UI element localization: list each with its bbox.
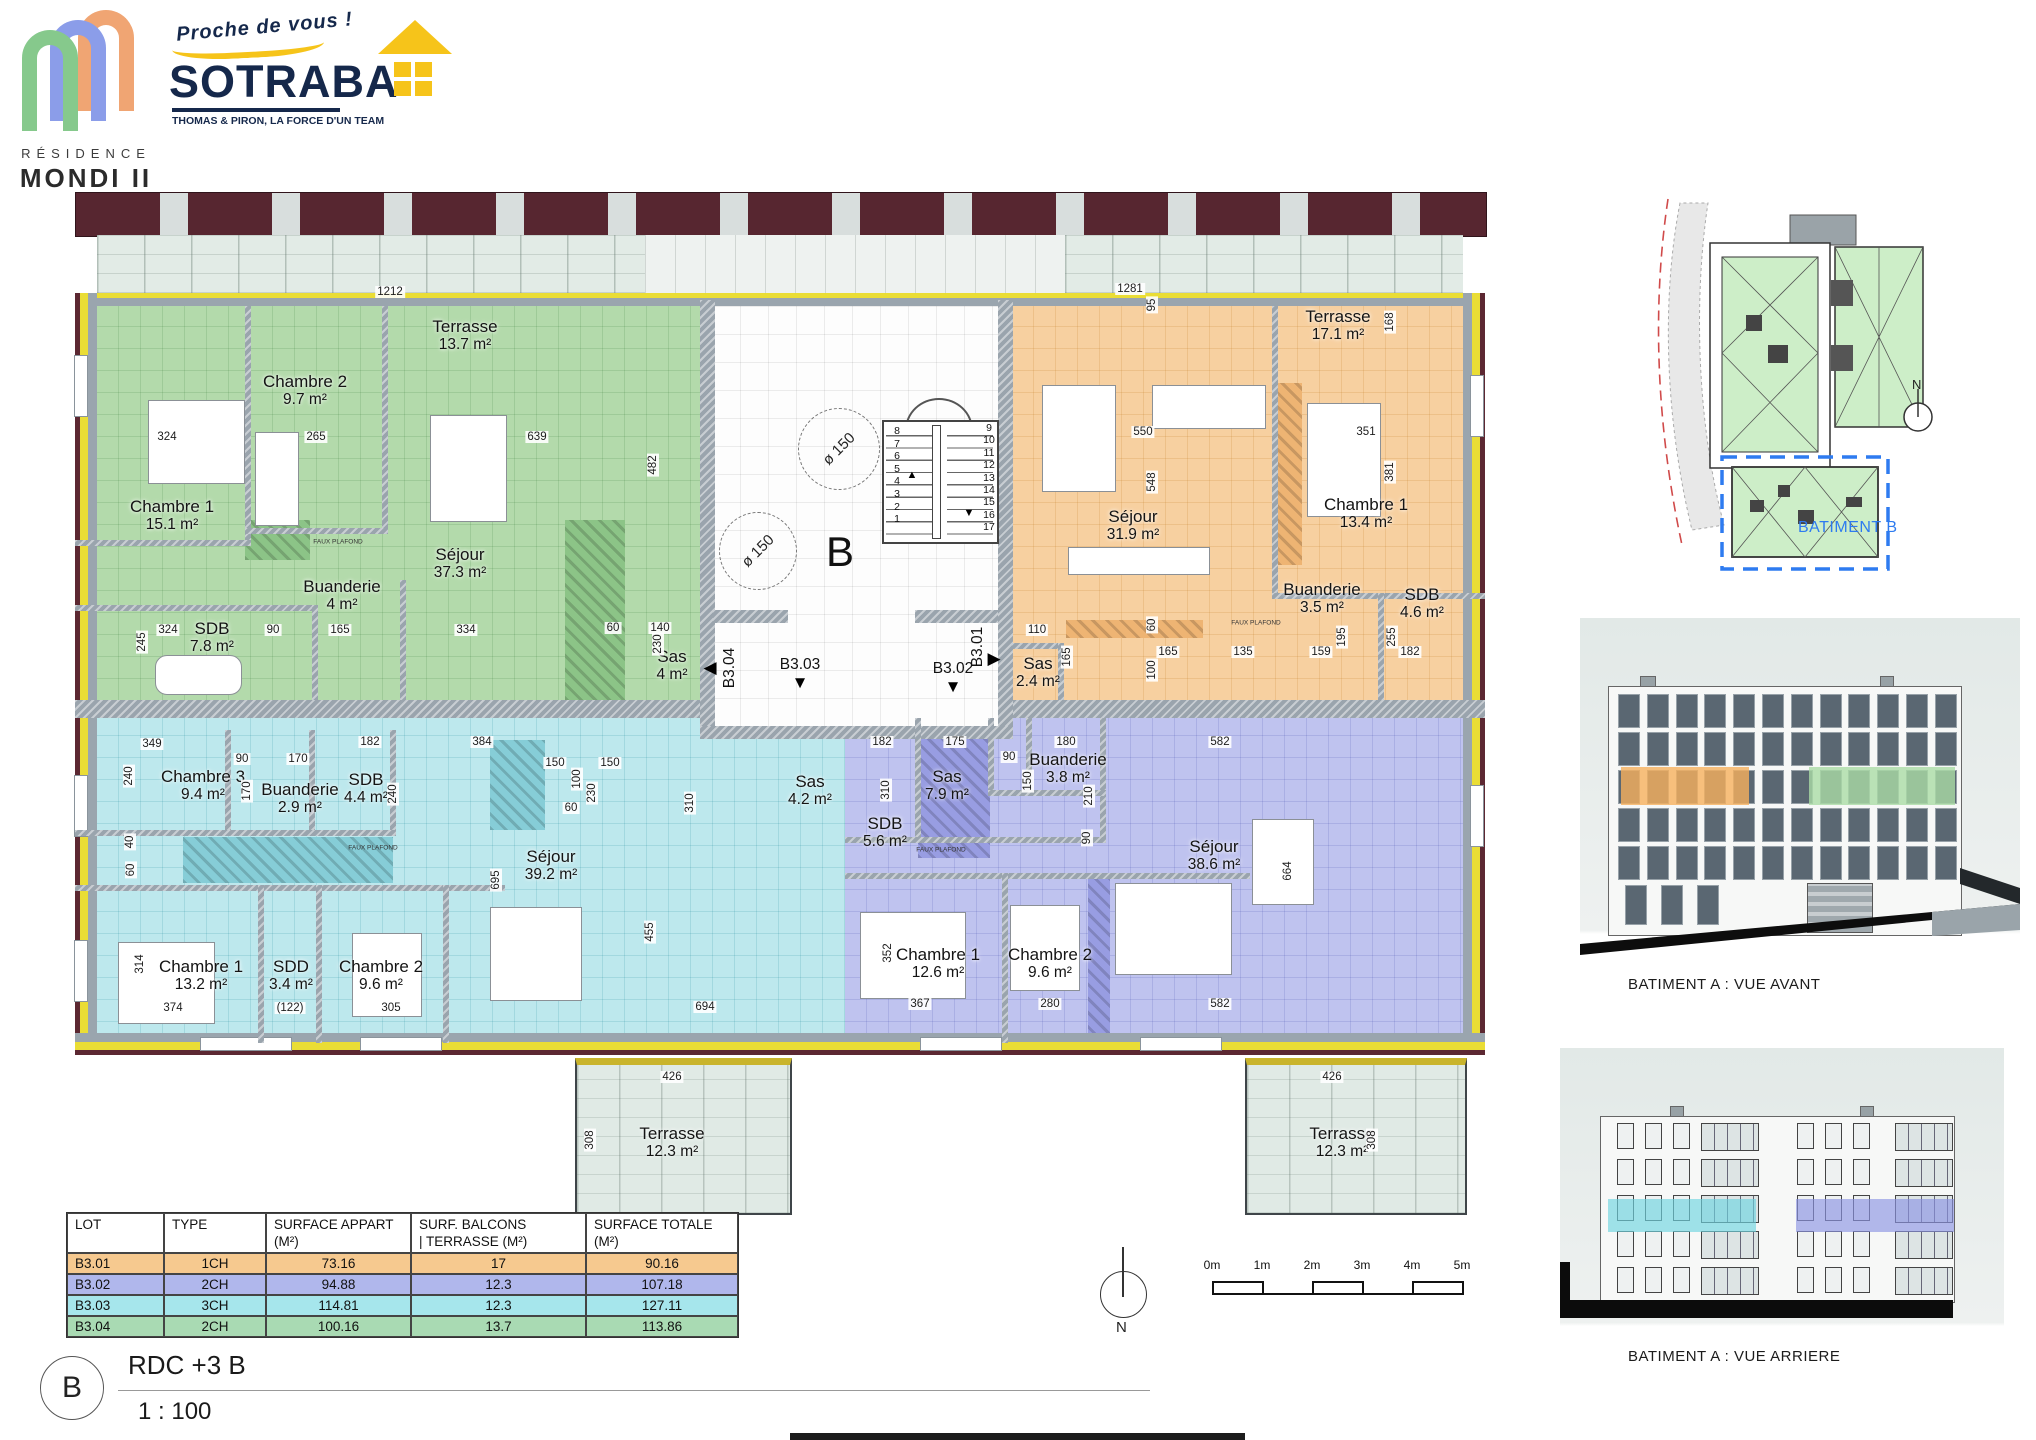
facade-window <box>1673 1231 1690 1257</box>
room-name: Séjour <box>434 545 487 564</box>
north-compass: N <box>1080 1245 1170 1345</box>
dimension-label: 60 <box>1146 617 1158 634</box>
table <box>490 907 582 1001</box>
dimension-label: 170 <box>286 753 309 765</box>
room-label: Chambre 112.6 m² <box>896 945 980 981</box>
table <box>430 415 507 522</box>
facade-window <box>1617 1159 1634 1185</box>
room-name: Chambre 2 <box>263 372 347 391</box>
room-label: Séjour31.9 m² <box>1107 507 1160 543</box>
stair-step-number: 17 <box>983 521 995 533</box>
dimension-label: 159 <box>1309 646 1332 658</box>
room-area: 12.3 m² <box>639 1143 704 1160</box>
stairs-down-arrow-icon: ▼ <box>964 507 975 519</box>
facade-window <box>1791 808 1813 842</box>
wall <box>75 540 251 546</box>
room-area: 9.6 m² <box>1008 964 1092 981</box>
unit-arrow-icon: ▼ <box>945 677 962 697</box>
entry-hatch <box>490 740 545 830</box>
table-cell: B3.03 <box>67 1295 164 1316</box>
wall <box>75 293 1485 306</box>
highlight-floor-orange <box>1621 767 1749 805</box>
facade-window <box>1617 1123 1634 1149</box>
stair-step-number: 8 <box>894 425 900 437</box>
room-area: 9.7 m² <box>263 391 347 408</box>
elevation-rear-label: BATIMENT A : VUE ARRIERE <box>1628 1348 1840 1365</box>
facade-window <box>1762 808 1784 842</box>
facade-window <box>1618 694 1640 728</box>
room-label: Chambre 39.4 m² <box>161 767 245 803</box>
roof-grid <box>645 235 1065 293</box>
highlight-floor-purple <box>1796 1199 1954 1232</box>
table-cell: 100.16 <box>266 1316 411 1337</box>
dimension-label: 168 <box>1384 310 1396 333</box>
entry-hatch <box>1278 383 1302 565</box>
window <box>1470 375 1484 437</box>
facade-window <box>1853 1267 1870 1293</box>
facade-window <box>1848 694 1870 728</box>
facade-window <box>1673 1123 1690 1149</box>
dimension-label: 374 <box>161 1002 184 1014</box>
dimension-label: 230 <box>586 781 598 804</box>
table-cell: 107.18 <box>586 1274 738 1295</box>
dimension-label: 90 <box>1001 751 1018 763</box>
room-area: 12.3 m² <box>1309 1143 1374 1160</box>
wall <box>443 885 449 1043</box>
wall <box>382 306 388 532</box>
elevation-front-label: BATIMENT A : VUE AVANT <box>1628 976 1820 993</box>
dimension-label: 351 <box>1354 426 1377 438</box>
entry-hatch <box>1066 620 1203 638</box>
bathtub <box>155 655 242 695</box>
dimension-label: FAUX PLAFOND <box>1229 620 1282 627</box>
facade-window <box>1853 1159 1870 1185</box>
sofa <box>1152 385 1266 429</box>
room-area: 3.5 m² <box>1283 599 1361 616</box>
facade-window <box>1733 808 1755 842</box>
room-label: Terrasse17.1 m² <box>1305 307 1370 343</box>
room-area: 4.6 m² <box>1400 604 1444 621</box>
table-cell: 2CH <box>164 1274 266 1295</box>
dimension-label: 349 <box>140 738 163 750</box>
room-area: 4 m² <box>303 596 381 613</box>
wall <box>915 718 921 840</box>
facade-window <box>1704 846 1726 880</box>
dimension-label: 110 <box>1026 624 1048 636</box>
room-area: 9.4 m² <box>161 786 245 803</box>
facade-window <box>1906 808 1928 842</box>
room-area: 17.1 m² <box>1305 326 1370 343</box>
room-area: 15.1 m² <box>130 516 214 533</box>
room-label: Séjour37.3 m² <box>434 545 487 581</box>
room-label: SDB5.6 m² <box>863 814 907 850</box>
upper-facade-band <box>75 192 1487 237</box>
room-name: SDB <box>863 814 907 833</box>
room-name: Chambre 1 <box>130 497 214 516</box>
unit-label: B3.04 <box>721 648 739 689</box>
company-subtitle: THOMAS & PIRON, LA FORCE D'UN TEAM <box>172 115 384 127</box>
wall <box>258 885 264 1043</box>
dimension-label: 175 <box>943 736 966 748</box>
dimension-label: 305 <box>379 1002 402 1014</box>
stair-step-number: 14 <box>983 484 995 496</box>
table-header-cell: SURF. BALCONS | TERRASSE (M²) <box>411 1213 586 1253</box>
dimension-label: 265 <box>304 431 327 443</box>
table-cell: 114.81 <box>266 1295 411 1316</box>
logo-arc-green-icon <box>22 30 78 131</box>
dimension-label: 381 <box>1384 460 1396 483</box>
facade-window <box>1848 808 1870 842</box>
wall <box>845 873 1250 879</box>
level-title: RDC +3 B <box>128 1350 246 1381</box>
wall <box>245 306 251 540</box>
facade-window <box>1791 732 1813 766</box>
dimension-label: 60 <box>125 862 137 879</box>
room-label: Terrasse13.7 m² <box>432 317 497 353</box>
room-label: Chambre 113.4 m² <box>1324 495 1408 531</box>
kitchen-counter <box>1068 547 1210 575</box>
facade-window <box>1647 694 1669 728</box>
batiment-b-label: BATIMENT B <box>1798 519 1898 537</box>
unit-arrow-icon: ▼ <box>792 673 809 693</box>
stairs-up-arrow-icon: ▲ <box>907 469 918 481</box>
facade-window <box>1877 808 1899 842</box>
dimension-label: 165 <box>328 624 351 636</box>
room-name: SDB <box>1400 585 1444 604</box>
facade-window <box>1935 732 1957 766</box>
table-cell: 127.11 <box>586 1295 738 1316</box>
facade-window <box>1647 846 1669 880</box>
wall <box>400 580 406 700</box>
house-icon <box>378 20 452 104</box>
facade-window <box>1701 1159 1759 1187</box>
facade-window <box>1825 1267 1842 1293</box>
wall <box>312 605 318 700</box>
room-area: 2.4 m² <box>1016 673 1060 690</box>
table-cell: B3.01 <box>67 1253 164 1274</box>
stair-step-number: 3 <box>894 488 900 500</box>
stair-step-number: 13 <box>983 472 995 484</box>
table-cell: 13.7 <box>411 1316 586 1337</box>
scalebar-label: 5m <box>1454 1258 1471 1272</box>
facade-window <box>1676 732 1698 766</box>
stair-step-number: 6 <box>894 450 900 462</box>
room-area: 31.9 m² <box>1107 526 1160 543</box>
room-name: Sas <box>925 767 969 786</box>
entry-hatch <box>245 520 310 560</box>
dimension-label: 165 <box>1156 646 1179 658</box>
table <box>1042 385 1116 492</box>
dimension-label: 180 <box>1054 736 1077 748</box>
table-header-cell: SURFACE APPART (M²) <box>266 1213 411 1253</box>
highlight-floor-cyan <box>1608 1199 1756 1232</box>
bed <box>255 432 299 526</box>
table-cell: 2CH <box>164 1316 266 1337</box>
facade-window <box>1877 846 1899 880</box>
facade-window <box>1762 732 1784 766</box>
stair-step-number: 5 <box>894 463 900 475</box>
facade-window <box>1676 808 1698 842</box>
facade-window <box>1645 1159 1662 1185</box>
diameter-label: ø 150 <box>738 531 777 570</box>
room-name: Buanderie <box>261 780 339 799</box>
scalebar-label: 1m <box>1254 1258 1271 1272</box>
dimension-label: 664 <box>1282 859 1294 882</box>
wall <box>1378 593 1384 700</box>
facade-window <box>1676 694 1698 728</box>
residence-logo <box>20 8 170 143</box>
dimension-label: 426 <box>660 1071 683 1083</box>
dimension-label: 60 <box>605 622 622 634</box>
room-label: Chambre 113.2 m² <box>159 957 243 993</box>
facade-window <box>1625 885 1647 925</box>
wall <box>390 730 396 830</box>
room-area: 4.4 m² <box>344 789 388 806</box>
company-name: SOTRABA <box>169 56 399 108</box>
drawing-sheet: RÉSIDENCE MONDI II Proche de vous ! SOTR… <box>0 0 2036 1440</box>
unit-label: B3.02 <box>933 660 974 678</box>
room-area: 13.7 m² <box>432 336 497 353</box>
facade-window <box>1825 1231 1842 1257</box>
facade-window <box>1618 732 1640 766</box>
stair-step-number: 1 <box>894 513 900 525</box>
table-cell: B3.02 <box>67 1274 164 1295</box>
dimension-label: 639 <box>525 431 548 443</box>
room-area: 2.9 m² <box>261 799 339 816</box>
table-cell: 113.86 <box>586 1316 738 1337</box>
dimension-label: 352 <box>882 941 894 964</box>
room-name: Buanderie <box>303 577 381 596</box>
room-name: SDB <box>190 619 234 638</box>
room-area: 12.6 m² <box>896 964 980 981</box>
room-area: 5.6 m² <box>863 833 907 850</box>
wall <box>75 605 315 611</box>
dimension-label: 90 <box>234 753 251 765</box>
facade-window <box>1825 1123 1842 1149</box>
stair-step-number: 2 <box>894 501 900 513</box>
residence-word: RÉSIDENCE <box>6 146 166 161</box>
facade-window <box>1701 1267 1759 1295</box>
stair-stringer <box>932 425 941 539</box>
room-name: Chambre 1 <box>896 945 980 964</box>
room-label: Chambre 115.1 m² <box>130 497 214 533</box>
table-cell: 1CH <box>164 1253 266 1274</box>
bottom-strip <box>790 1433 1245 1440</box>
title-line <box>118 1390 1150 1391</box>
facade-window <box>1848 846 1870 880</box>
dimension-label: 90 <box>265 624 282 636</box>
room-label: Chambre 29.6 m² <box>339 957 423 993</box>
room-label: Sas2.4 m² <box>1016 654 1060 690</box>
dimension-label: 384 <box>470 736 493 748</box>
site-north-label: N <box>1912 377 1921 392</box>
dimension-label: 455 <box>644 920 656 943</box>
facade-window <box>1697 885 1719 925</box>
dimension-label: FAUX PLAFOND <box>346 845 399 852</box>
table-header-cell: SURFACE TOTALE (M²) <box>586 1213 738 1253</box>
dimension-label: 367 <box>908 998 931 1010</box>
elevation-front: BATIMENT A : VUE AVANT <box>1580 618 2020 1018</box>
room-label: SDB7.8 m² <box>190 619 234 655</box>
facade-window <box>1791 846 1813 880</box>
room-name: SDB <box>344 770 388 789</box>
window <box>74 355 88 417</box>
room-label: Sas7.9 m² <box>925 767 969 803</box>
dimension-label: 324 <box>155 431 178 443</box>
facade-window <box>1797 1267 1814 1293</box>
wall <box>316 885 322 1043</box>
room-name: Terrasse <box>639 1124 704 1143</box>
facade-window <box>1820 846 1842 880</box>
table-cell: 73.16 <box>266 1253 411 1274</box>
dimension-label: 280 <box>1038 998 1061 1010</box>
facade-window <box>1895 1267 1953 1295</box>
facade-window <box>1645 1267 1662 1293</box>
facade-window <box>1820 694 1842 728</box>
facade-window <box>1895 1231 1953 1259</box>
facade-window <box>1704 808 1726 842</box>
unit-label: B3.03 <box>780 656 821 674</box>
facade-window <box>1825 1159 1842 1185</box>
room-label: Buanderie3.8 m² <box>1029 750 1107 786</box>
facade-window <box>1673 1159 1690 1185</box>
facade-window <box>1848 732 1870 766</box>
dimension-label: 695 <box>490 868 502 891</box>
sofa <box>1115 883 1232 975</box>
facade-window <box>1647 808 1669 842</box>
apartment-b301-region <box>1012 306 1485 700</box>
room-area: 39.2 m² <box>525 866 578 883</box>
facade-window <box>1645 1123 1662 1149</box>
facade-window <box>1906 732 1928 766</box>
room-name: Séjour <box>1188 837 1241 856</box>
room-name: Terrasse <box>1309 1124 1374 1143</box>
room-area: 4.2 m² <box>788 791 832 808</box>
wall <box>1012 643 1062 649</box>
room-label: Terrasse12.3 m² <box>639 1124 704 1160</box>
table-cell: 90.16 <box>586 1253 738 1274</box>
dimension-label: 310 <box>880 778 892 801</box>
room-name: Terrasse <box>1305 307 1370 326</box>
stair-step-number: 16 <box>983 509 995 521</box>
room-name: Sas <box>1016 654 1060 673</box>
facade-window <box>1733 694 1755 728</box>
scale-label: 1 : 100 <box>138 1398 211 1426</box>
facade-window <box>1877 694 1899 728</box>
scale-bar: 0m1m2m3m4m5m <box>1212 1258 1472 1300</box>
room-name: Sas <box>788 772 832 791</box>
room-label: Buanderie3.5 m² <box>1283 580 1361 616</box>
dimension-label: 182 <box>358 736 381 748</box>
facade-window <box>1733 846 1755 880</box>
facade-window <box>1935 846 1957 880</box>
wall <box>245 528 388 534</box>
dimension-label: 482 <box>647 453 659 476</box>
window <box>1470 785 1484 847</box>
building-letter: B <box>826 528 854 576</box>
dimension-label: 135 <box>1231 646 1254 658</box>
window <box>74 775 88 837</box>
window <box>200 1037 292 1051</box>
dimension-label: 210 <box>1083 784 1095 807</box>
stair-step-number: 4 <box>894 475 900 487</box>
room-label: SDD3.4 m² <box>269 957 313 993</box>
stair-step-number: 11 <box>984 447 995 459</box>
facade-window <box>1645 1231 1662 1257</box>
facade-window <box>1701 1231 1759 1259</box>
unit-arrow-icon: ▶ <box>987 649 1000 669</box>
north-label: N <box>1116 1319 1127 1336</box>
dimension-label: 550 <box>1131 426 1154 438</box>
room-label: Buanderie4 m² <box>303 577 381 613</box>
dimension-label: 310 <box>684 791 696 814</box>
dimension-label: 150 <box>543 757 566 769</box>
scalebar-label: 2m <box>1304 1258 1321 1272</box>
stair-step-number: 12 <box>983 459 995 471</box>
room-name: Buanderie <box>1029 750 1107 769</box>
highlight-floor-green <box>1809 767 1955 805</box>
dimension-label: 182 <box>870 736 893 748</box>
dimension-label: 334 <box>454 624 477 636</box>
dimension-label: 240 <box>387 782 399 805</box>
room-area: 38.6 m² <box>1188 856 1241 873</box>
stair-step-number: 15 <box>983 496 995 508</box>
lot-table: LOTTYPESURFACE APPART (M²)SURF. BALCONS … <box>66 1212 739 1338</box>
wall <box>915 610 998 623</box>
entry-hatch <box>565 520 625 700</box>
room-area: 4 m² <box>657 666 688 683</box>
logo-rule <box>172 108 340 112</box>
scalebar-label: 4m <box>1404 1258 1421 1272</box>
room-area: 3.4 m² <box>269 976 313 993</box>
room-name: Chambre 1 <box>1324 495 1408 514</box>
window <box>360 1037 442 1051</box>
dimension-label: 314 <box>134 952 146 975</box>
retaining-wall <box>1560 1262 1570 1318</box>
wall <box>75 885 505 891</box>
room-area: 7.8 m² <box>190 638 234 655</box>
room-label: Séjour39.2 m² <box>525 847 578 883</box>
table-cell: 3CH <box>164 1295 266 1316</box>
facade-window <box>1733 732 1755 766</box>
facade-window <box>1853 1123 1870 1149</box>
facade-window <box>1647 732 1669 766</box>
table-cell: B3.04 <box>67 1316 164 1337</box>
site-plan: N BATIMENT B <box>1650 185 1970 580</box>
dimension-label: 100 <box>1146 658 1158 681</box>
dimension-label: 324 <box>156 624 179 636</box>
dimension-label: 40 <box>124 834 136 851</box>
elevation-rear: BATIMENT A : VUE ARRIERE <box>1560 1048 2004 1400</box>
room-name: Chambre 2 <box>1008 945 1092 964</box>
room-name: Chambre 2 <box>339 957 423 976</box>
window <box>1140 1037 1222 1051</box>
facade-window <box>1762 694 1784 728</box>
room-name: Séjour <box>525 847 578 866</box>
room-area: 3.8 m² <box>1029 769 1107 786</box>
diameter-label: ø 150 <box>819 429 858 468</box>
dimension-label: FAUX PLAFOND <box>311 539 364 546</box>
dimension-label: 245 <box>136 630 148 653</box>
unit-arrow-icon: ◀ <box>703 658 716 678</box>
dimension-label: 694 <box>693 1001 716 1013</box>
room-label: Sas4.2 m² <box>788 772 832 808</box>
facade-window <box>1701 1123 1759 1151</box>
facade-window <box>1820 808 1842 842</box>
facade-window <box>1762 846 1784 880</box>
room-name: Buanderie <box>1283 580 1361 599</box>
room-name: Terrasse <box>432 317 497 336</box>
